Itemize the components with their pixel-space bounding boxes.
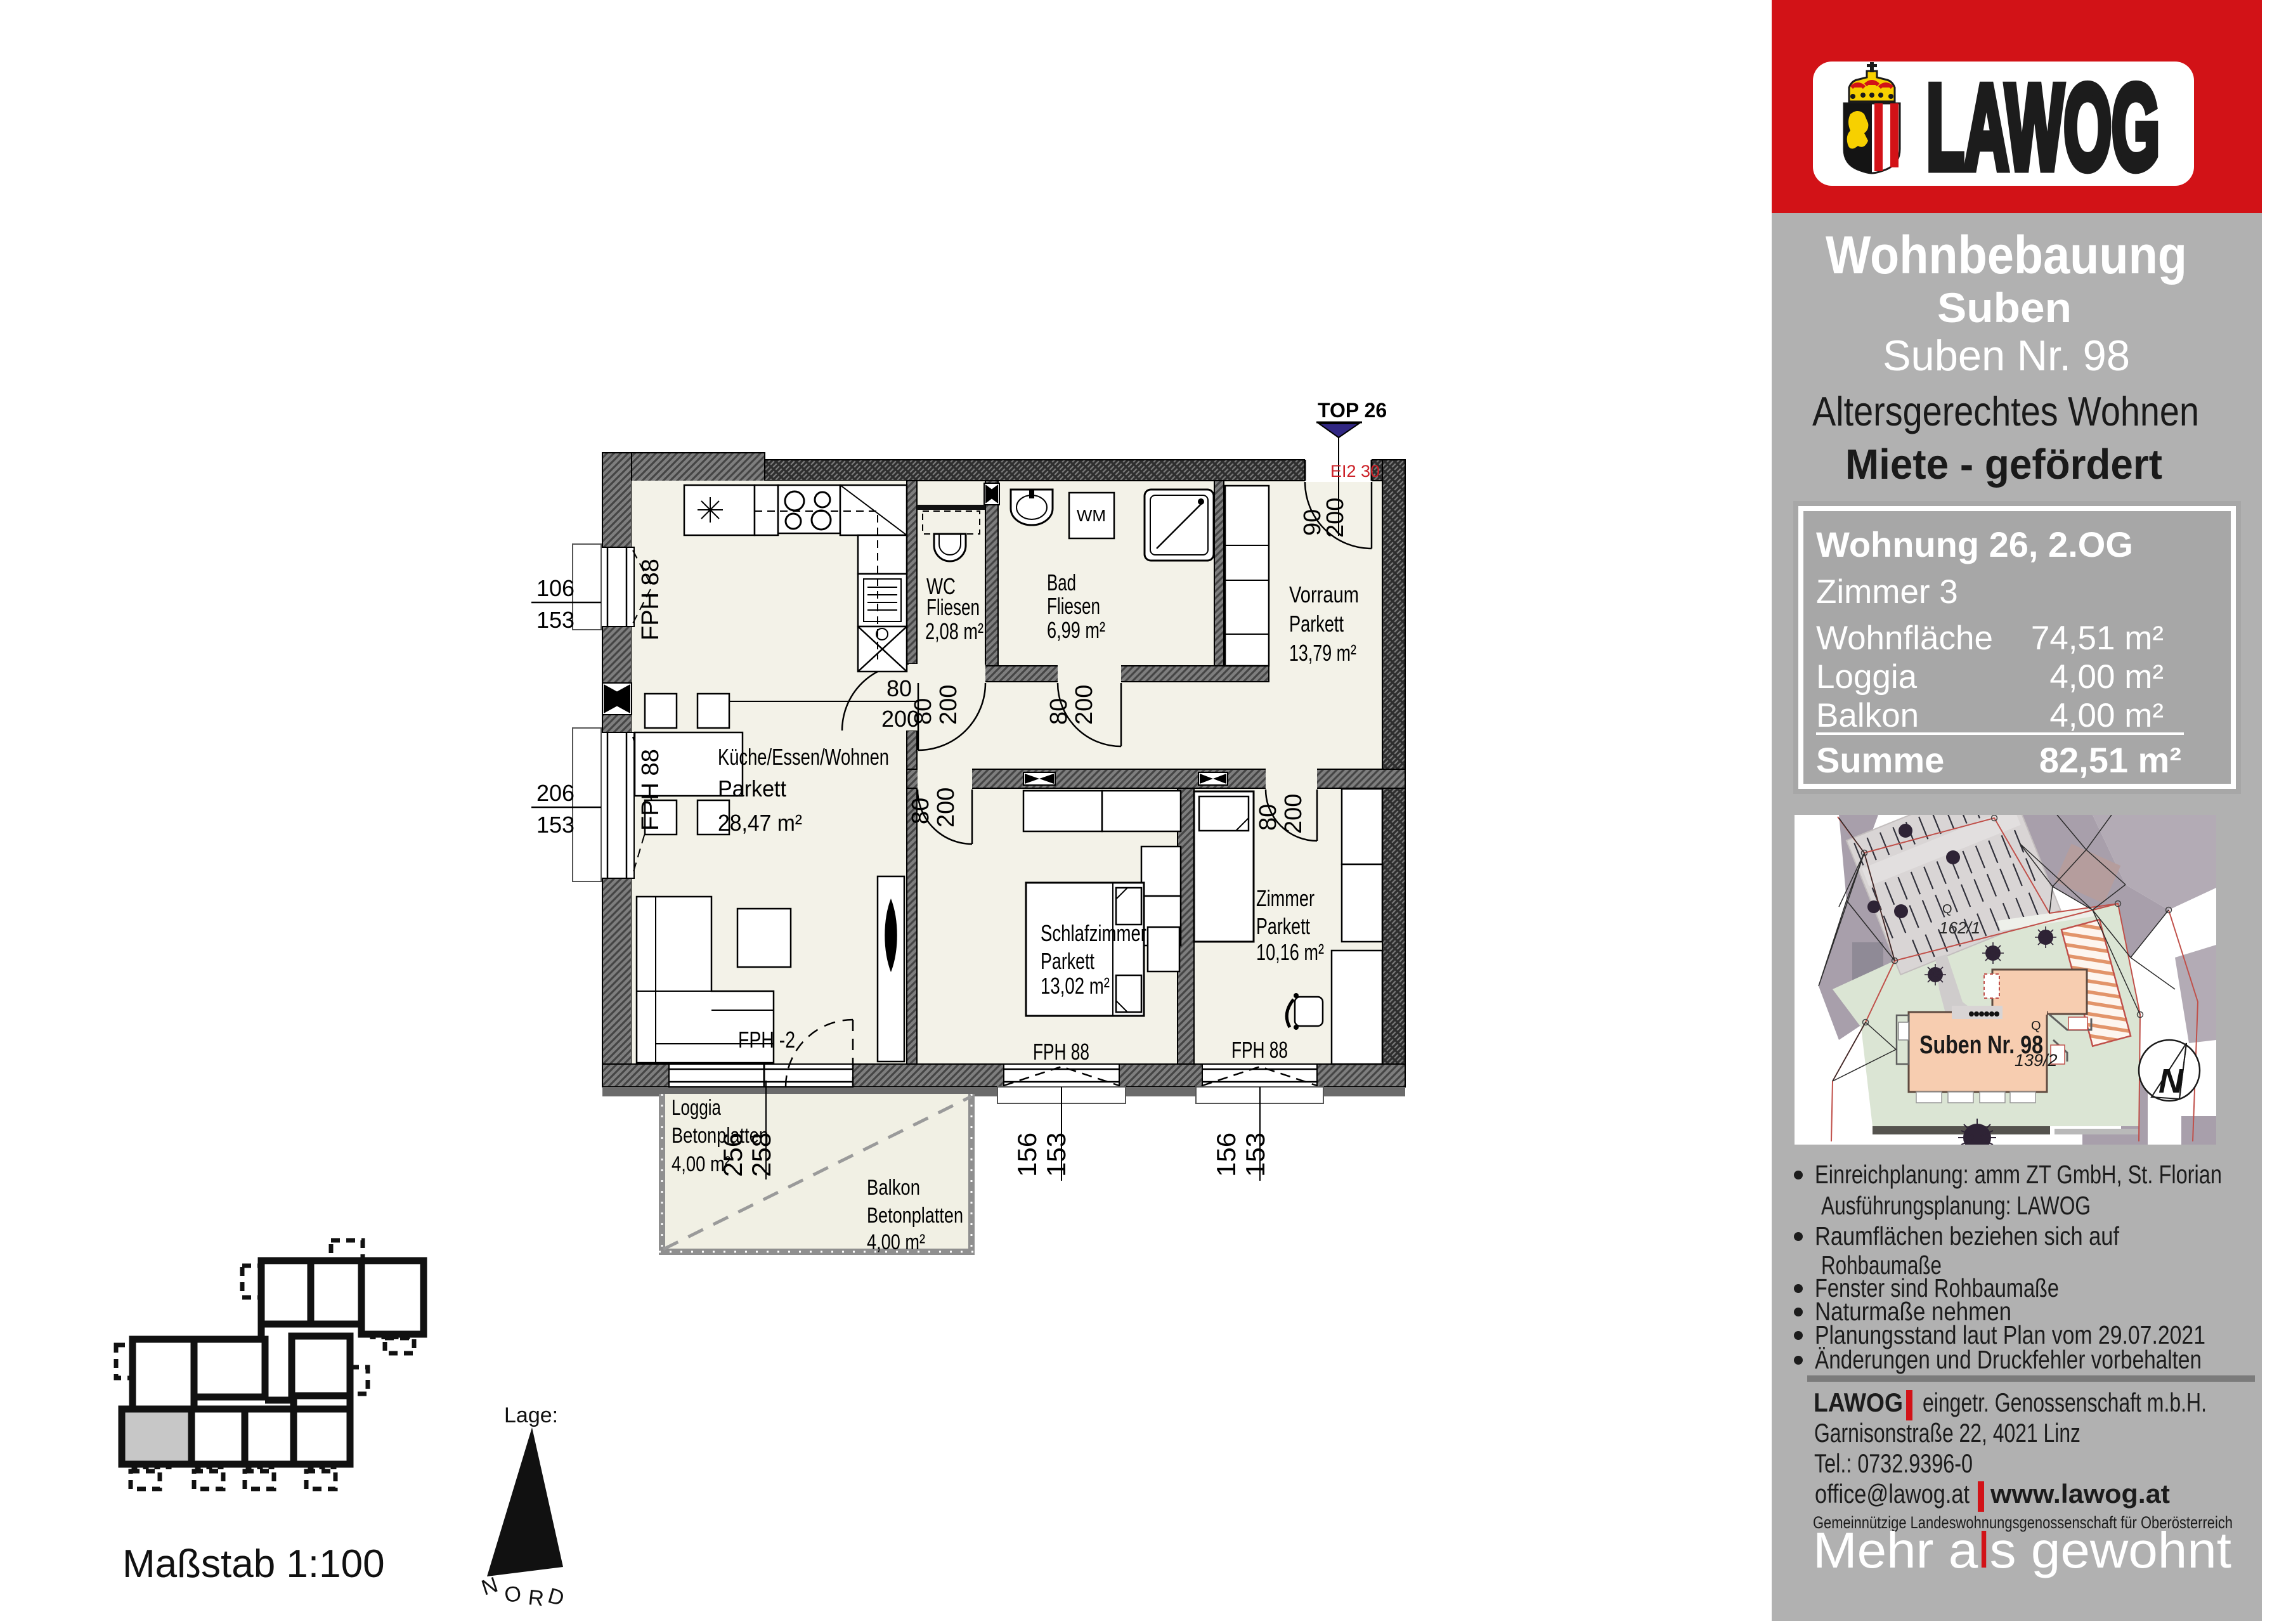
svg-text:106: 106	[536, 575, 574, 601]
svg-text:6,99 m²: 6,99 m²	[1047, 617, 1105, 643]
svg-text:Loggia: Loggia	[672, 1096, 721, 1120]
svg-text:80: 80	[1255, 804, 1282, 831]
svg-text:153: 153	[1041, 1133, 1071, 1177]
svg-text:Suben: Suben	[1937, 284, 2072, 331]
svg-text:EI2 30: EI2 30	[1330, 462, 1380, 481]
svg-text:80: 80	[907, 798, 934, 824]
svg-text:FPH 88: FPH 88	[1231, 1037, 1288, 1063]
svg-text:FPH 88: FPH 88	[637, 749, 664, 831]
svg-text:Fliesen: Fliesen	[1047, 593, 1100, 619]
svg-text:Wohnung 26, 2.OG: Wohnung 26, 2.OG	[1816, 524, 2133, 564]
svg-text:Vorraum: Vorraum	[1289, 581, 1359, 607]
svg-text:Bad: Bad	[1047, 569, 1076, 595]
svg-text:Altersgerechtes Wohnen: Altersgerechtes Wohnen	[1812, 388, 2199, 434]
svg-text:Miete - gefördert: Miete - gefördert	[1845, 441, 2162, 488]
svg-text:156: 156	[1012, 1133, 1042, 1177]
svg-text:eingetr. Genossenschaft m.b.H.: eingetr. Genossenschaft m.b.H.	[1923, 1387, 2207, 1417]
svg-text:Balkon: Balkon	[867, 1176, 920, 1200]
svg-text:Parkett: Parkett	[1289, 611, 1344, 637]
svg-text:Mehr als gewohnt: Mehr als gewohnt	[1813, 1522, 2231, 1578]
svg-text:Zimmer 3: Zimmer 3	[1816, 573, 1958, 611]
svg-text:office@lawog.at: office@lawog.at	[1815, 1479, 1970, 1509]
svg-text:Wohnbebauung: Wohnbebauung	[1826, 225, 2187, 285]
svg-text:www.lawog.at: www.lawog.at	[1990, 1479, 2170, 1509]
svg-text:Fliesen: Fliesen	[926, 594, 980, 620]
svg-text:153: 153	[1240, 1133, 1270, 1177]
svg-text:74,51 m²: 74,51 m²	[2031, 620, 2164, 657]
svg-text:Wohnfläche: Wohnfläche	[1816, 620, 1993, 657]
svg-text:Q: Q	[1942, 902, 1952, 916]
svg-text:258: 258	[746, 1133, 776, 1177]
svg-text:13,79 m²: 13,79 m²	[1289, 640, 1356, 666]
svg-text:80: 80	[886, 675, 912, 701]
svg-text:Maßstab 1:100: Maßstab 1:100	[122, 1542, 385, 1586]
svg-text:Betonplatten: Betonplatten	[867, 1204, 963, 1228]
svg-text:Lage:: Lage:	[504, 1403, 558, 1427]
svg-text:Tel.: 0732.9396-0: Tel.: 0732.9396-0	[1814, 1448, 1973, 1478]
svg-text:156: 156	[1211, 1133, 1241, 1177]
svg-text:Schlafzimmer: Schlafzimmer	[1041, 920, 1146, 946]
svg-text:WM: WM	[1077, 506, 1106, 525]
svg-text:Ausführungsplanung: LAWOG: Ausführungsplanung: LAWOG	[1821, 1191, 2091, 1220]
svg-text:4,00 m²: 4,00 m²	[867, 1230, 925, 1254]
svg-text:206: 206	[536, 780, 574, 806]
svg-text:200: 200	[1071, 685, 1098, 725]
svg-text:R: R	[527, 1585, 545, 1611]
svg-text:Summe: Summe	[1816, 740, 1944, 780]
svg-text:28,47 m²: 28,47 m²	[718, 810, 802, 836]
svg-text:256: 256	[718, 1133, 748, 1177]
svg-text:82,51 m²: 82,51 m²	[2039, 740, 2181, 780]
svg-text:80: 80	[910, 698, 937, 725]
svg-text:Raumflächen beziehen sich auf: Raumflächen beziehen sich auf	[1815, 1221, 2120, 1250]
svg-text:Küche/Essen/Wohnen: Küche/Essen/Wohnen	[718, 744, 889, 770]
svg-text:200: 200	[1280, 794, 1307, 834]
svg-text:LAWOG: LAWOG	[1926, 60, 2160, 195]
svg-text:FPH -2: FPH -2	[738, 1027, 795, 1053]
svg-text:O: O	[503, 1582, 523, 1608]
svg-text:Loggia: Loggia	[1816, 658, 1918, 696]
svg-text:Zimmer: Zimmer	[1256, 885, 1315, 911]
svg-text:4,00 m²: 4,00 m²	[2049, 697, 2164, 734]
svg-text:LAWOG: LAWOG	[1814, 1387, 1903, 1417]
svg-text:200: 200	[1322, 498, 1349, 538]
svg-text:139/2: 139/2	[2015, 1051, 2058, 1070]
svg-text:153: 153	[536, 812, 574, 838]
svg-text:Balkon: Balkon	[1816, 697, 1919, 734]
svg-text:N: N	[2158, 1062, 2184, 1100]
svg-text:FPH 88: FPH 88	[637, 559, 664, 640]
svg-text:13,02 m²: 13,02 m²	[1041, 973, 1110, 999]
svg-text:Garnisonstraße 22, 4021 Linz: Garnisonstraße 22, 4021 Linz	[1814, 1418, 2081, 1448]
svg-text:153: 153	[536, 607, 574, 633]
svg-text:Suben Nr. 98: Suben Nr. 98	[1883, 332, 2130, 380]
svg-text:162/1: 162/1	[1939, 918, 1980, 937]
svg-text:80: 80	[1046, 698, 1072, 725]
svg-text:200: 200	[935, 685, 962, 725]
svg-text:Parkett: Parkett	[1256, 913, 1310, 939]
svg-text:FPH 88: FPH 88	[1033, 1039, 1089, 1065]
svg-text:10,16 m²: 10,16 m²	[1256, 939, 1324, 965]
svg-text:TOP 26: TOP 26	[1318, 399, 1387, 422]
svg-text:200: 200	[933, 788, 959, 828]
svg-text:Parkett: Parkett	[718, 776, 786, 802]
svg-text:Änderungen und Druckfehler vor: Änderungen und Druckfehler vorbehalten	[1815, 1345, 2202, 1374]
svg-text:Einreichplanung: amm ZT GmbH,: Einreichplanung: amm ZT GmbH, St. Floria…	[1815, 1160, 2222, 1189]
svg-text:4,00 m²: 4,00 m²	[2049, 658, 2164, 696]
svg-text:2,08 m²: 2,08 m²	[925, 618, 983, 644]
svg-text:Parkett: Parkett	[1041, 948, 1094, 974]
svg-text:Q: Q	[2031, 1019, 2041, 1033]
